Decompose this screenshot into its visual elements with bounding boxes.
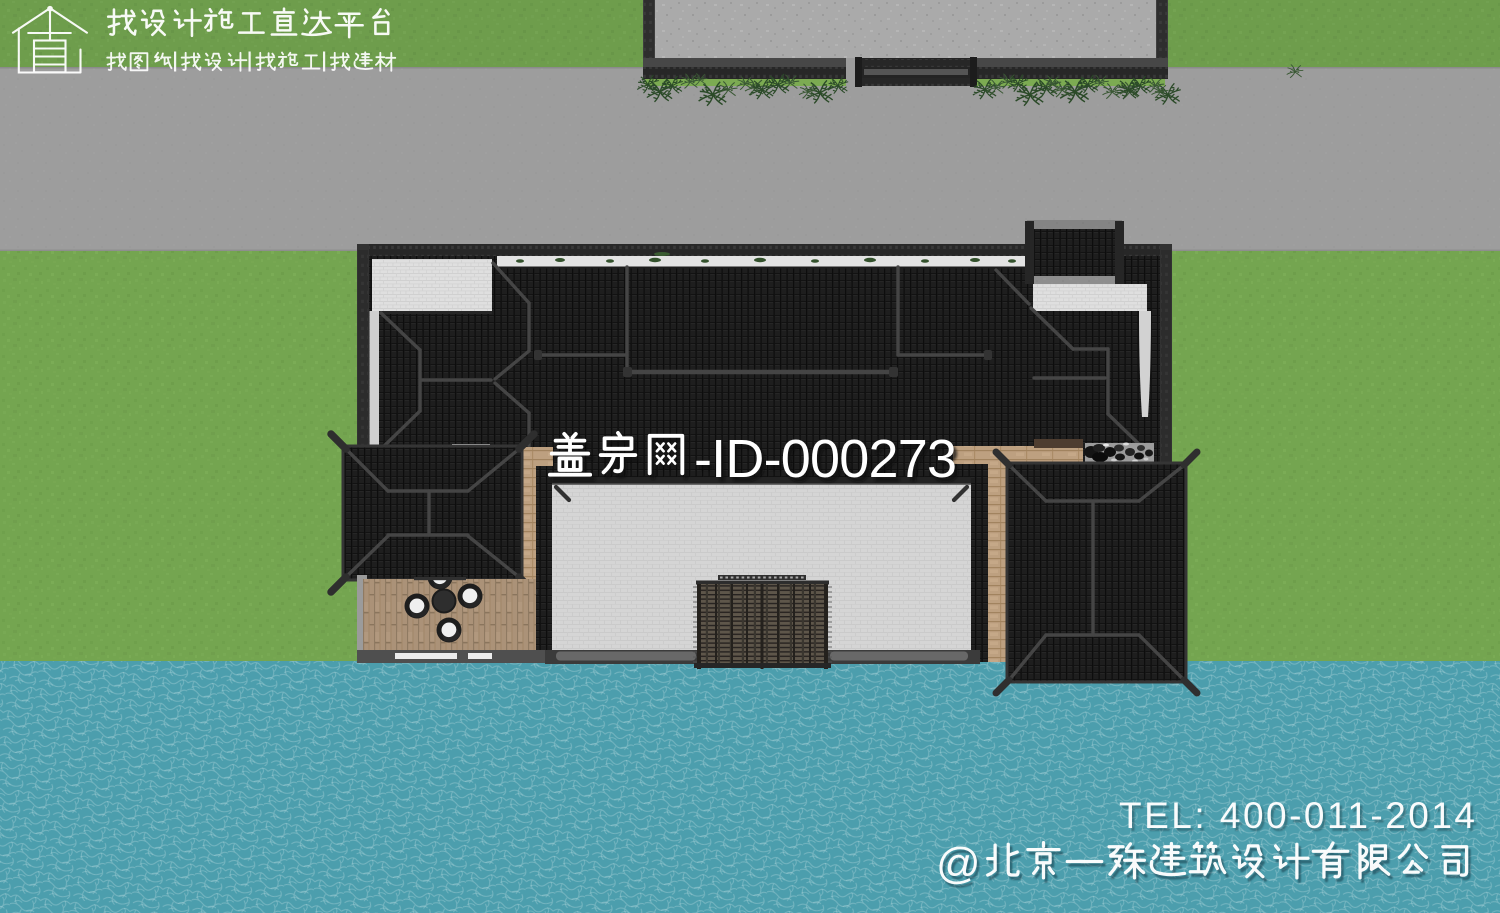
svg-text:-ID-000273: -ID-000273: [694, 429, 957, 489]
svg-text:TEL: 400-011-2014: TEL: 400-011-2014: [1119, 795, 1475, 836]
svg-text:@: @: [936, 839, 981, 888]
